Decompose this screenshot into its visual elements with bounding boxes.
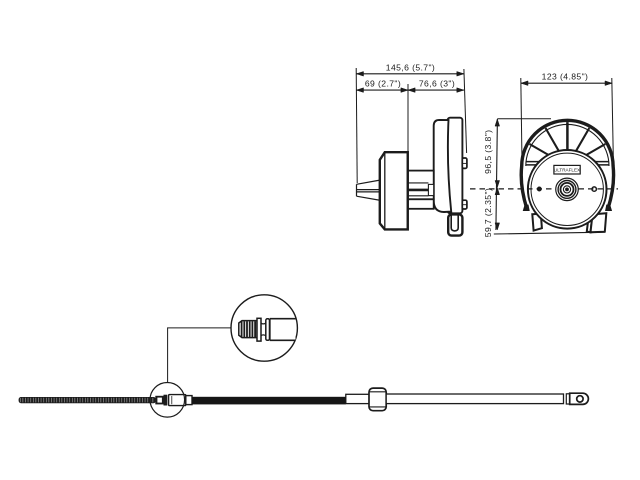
svg-text:123 (4.85"): 123 (4.85") [542,72,589,82]
svg-text:59,7 (2.35"): 59,7 (2.35") [483,188,493,237]
svg-text:96,5 (3.8"): 96,5 (3.8") [483,130,493,174]
svg-text:ULTRAFLEX: ULTRAFLEX [554,168,580,173]
svg-text:69 (2.7"): 69 (2.7") [365,79,401,89]
svg-text:76,6 (3"): 76,6 (3") [419,79,455,89]
svg-text:145,6 (5.7"): 145,6 (5.7") [386,62,435,72]
